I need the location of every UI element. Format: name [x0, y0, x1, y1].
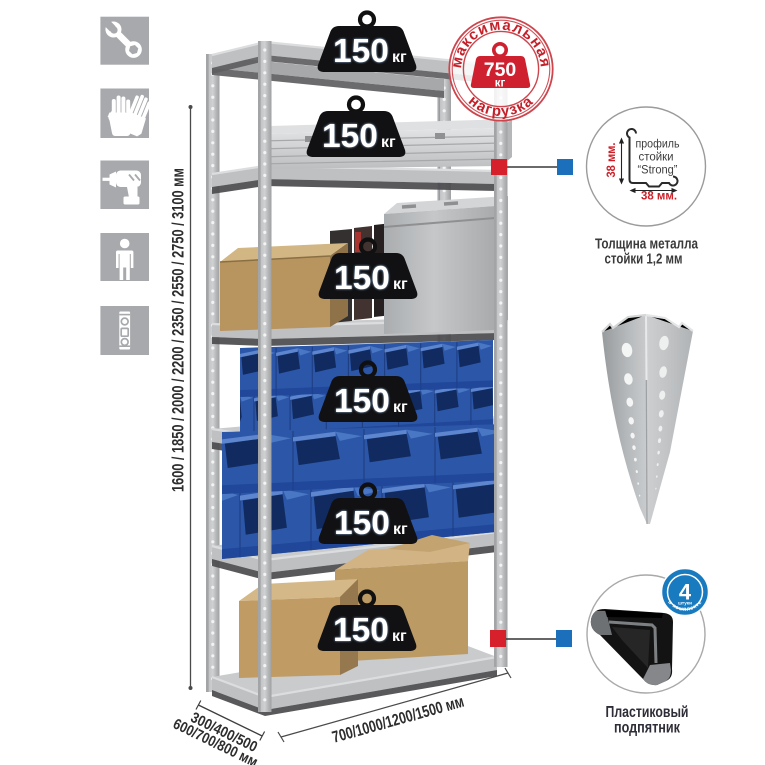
svg-text:штуки: штуки — [678, 601, 692, 606]
svg-text:“Strong”: “Strong” — [638, 163, 678, 177]
svg-text:кг: кг — [393, 521, 408, 538]
svg-text:150: 150 — [334, 505, 390, 542]
svg-text:стойки: стойки — [639, 150, 674, 164]
svg-text:150: 150 — [333, 33, 389, 70]
svg-text:подпятник: подпятник — [614, 720, 680, 737]
svg-text:кг: кг — [495, 78, 506, 90]
svg-text:кг: кг — [393, 276, 408, 293]
svg-text:кг: кг — [392, 49, 407, 66]
svg-text:Пластиковый: Пластиковый — [606, 704, 689, 721]
svg-text:стойки 1,2 мм: стойки 1,2 мм — [605, 251, 683, 268]
svg-text:профиль: профиль — [636, 137, 680, 151]
svg-text:150: 150 — [334, 383, 390, 420]
svg-text:кг: кг — [381, 134, 396, 151]
svg-text:кг: кг — [393, 399, 408, 416]
svg-text:150: 150 — [322, 118, 378, 155]
svg-text:38 мм.: 38 мм. — [606, 143, 618, 178]
svg-text:38 мм.: 38 мм. — [641, 191, 677, 203]
svg-text:кг: кг — [392, 628, 407, 645]
svg-text:150: 150 — [333, 612, 389, 649]
svg-text:150: 150 — [334, 260, 390, 297]
svg-text:1600 / 1850 / 2000 / 2200 / 23: 1600 / 1850 / 2000 / 2200 / 2350 / 2550 … — [170, 168, 188, 492]
